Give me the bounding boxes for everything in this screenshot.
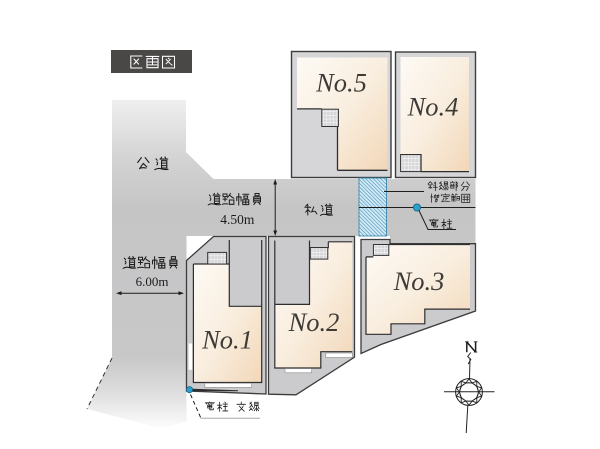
svg-text:6.00m: 6.00m — [136, 274, 169, 289]
svg-text:4.50m: 4.50m — [220, 212, 255, 227]
svg-text:No.2: No.2 — [288, 307, 340, 337]
svg-text:No.1: No.1 — [201, 325, 253, 355]
svg-text:No.4: No.4 — [407, 92, 459, 122]
svg-text:No.5: No.5 — [315, 68, 367, 98]
svg-text:No.3: No.3 — [393, 266, 445, 296]
